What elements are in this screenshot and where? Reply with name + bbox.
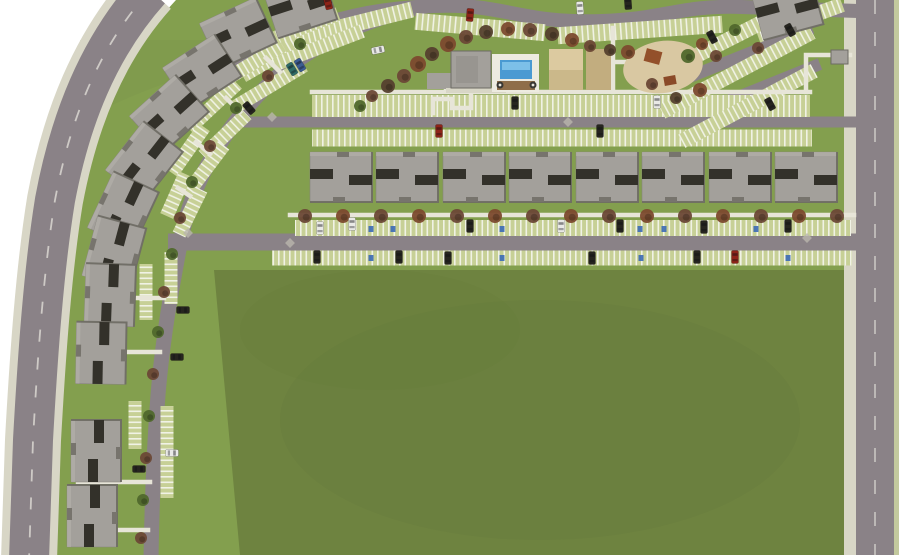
handicap-marker bbox=[391, 226, 396, 232]
courtyard-notch bbox=[576, 169, 599, 179]
car-rear-window bbox=[396, 259, 401, 261]
car-windshield bbox=[654, 98, 659, 101]
car-body bbox=[589, 252, 596, 265]
car bbox=[317, 222, 324, 235]
tree-shadow bbox=[370, 94, 376, 100]
tree-shadow bbox=[570, 38, 577, 45]
car bbox=[512, 97, 519, 110]
car-body bbox=[467, 220, 474, 233]
amenity-detail bbox=[499, 84, 502, 87]
car bbox=[785, 220, 792, 233]
handicap-marker bbox=[369, 226, 374, 232]
car-rear-window bbox=[168, 450, 170, 455]
courtyard-notch bbox=[349, 175, 372, 185]
right-road-sidewalk bbox=[844, 0, 856, 555]
courtyard-notch bbox=[443, 169, 466, 179]
roof-vent bbox=[470, 152, 482, 157]
courtyard-notch bbox=[84, 524, 94, 547]
tree-shadow bbox=[835, 214, 842, 221]
tree-shadow bbox=[493, 214, 500, 221]
tree-shadow bbox=[698, 88, 705, 95]
car-body bbox=[512, 97, 519, 110]
roof-vent bbox=[403, 152, 415, 157]
apartment-building bbox=[376, 152, 438, 202]
tree-shadow bbox=[714, 54, 720, 60]
roof-vent bbox=[85, 286, 90, 298]
tree-shadow bbox=[759, 214, 766, 221]
car-windshield bbox=[577, 4, 582, 7]
parking-stalls bbox=[272, 251, 852, 266]
tree-shadow bbox=[208, 144, 214, 150]
roof-vent bbox=[116, 447, 121, 459]
car-rear-window bbox=[317, 230, 322, 232]
car-rear-window bbox=[467, 228, 472, 230]
car-body bbox=[133, 466, 146, 473]
car-windshield bbox=[589, 254, 594, 257]
car bbox=[624, 0, 632, 10]
car bbox=[732, 251, 739, 264]
car-windshield bbox=[617, 222, 622, 225]
roof-vent bbox=[337, 152, 349, 157]
car-windshield bbox=[317, 224, 322, 227]
car-rear-window bbox=[654, 104, 659, 106]
tree-shadow bbox=[139, 536, 145, 542]
right-road-verge bbox=[894, 0, 899, 555]
roof-vent bbox=[466, 197, 478, 202]
tree-shadow bbox=[733, 28, 739, 34]
tree-shadow bbox=[721, 214, 728, 221]
car-body bbox=[436, 125, 443, 138]
handicap-marker bbox=[369, 255, 374, 261]
courtyard-notch bbox=[310, 169, 333, 179]
car bbox=[617, 220, 624, 233]
car-windshield bbox=[178, 354, 181, 359]
tree-shadow bbox=[607, 214, 614, 221]
tree-shadow bbox=[417, 214, 424, 221]
car-windshield bbox=[140, 466, 143, 471]
apartment-building bbox=[709, 152, 771, 202]
car-body bbox=[701, 221, 708, 234]
handicap-marker bbox=[786, 255, 791, 261]
tree-shadow bbox=[484, 30, 491, 37]
apartment-building bbox=[310, 152, 372, 202]
tree-shadow bbox=[156, 330, 162, 336]
car bbox=[694, 251, 701, 264]
apartment-building bbox=[67, 485, 117, 547]
tree-shadow bbox=[144, 456, 150, 462]
roof-vent bbox=[67, 508, 72, 520]
tree-shadow bbox=[506, 27, 513, 34]
car bbox=[445, 252, 452, 265]
tree-shadow bbox=[170, 252, 176, 258]
amenity-structure bbox=[456, 56, 478, 83]
roof-vent bbox=[333, 197, 345, 202]
car bbox=[466, 8, 474, 22]
courtyard-notch bbox=[92, 361, 102, 384]
car-rear-window bbox=[597, 133, 602, 135]
handicap-marker bbox=[500, 255, 505, 261]
apartment-building bbox=[775, 152, 837, 202]
courtyard-notch bbox=[748, 175, 771, 185]
tree-shadow bbox=[358, 104, 364, 110]
roof-vent bbox=[112, 512, 117, 524]
car-windshield bbox=[468, 11, 473, 14]
tree-shadow bbox=[141, 498, 147, 504]
car-body bbox=[396, 251, 403, 264]
apartment-building bbox=[642, 152, 704, 202]
car-body bbox=[785, 220, 792, 233]
car-windshield bbox=[396, 253, 401, 256]
car-body bbox=[171, 354, 184, 361]
car-rear-window bbox=[314, 259, 319, 261]
parking-band bbox=[272, 251, 852, 266]
roof-vent bbox=[71, 443, 76, 455]
amenity-structure bbox=[427, 73, 453, 89]
car-windshield bbox=[701, 223, 706, 226]
amenity-structure bbox=[549, 49, 583, 70]
car bbox=[597, 125, 604, 138]
roof-vent bbox=[736, 152, 748, 157]
tree-shadow bbox=[234, 106, 240, 112]
site-plan-svg bbox=[0, 0, 915, 555]
courtyard-notch bbox=[509, 169, 532, 179]
courtyard-notch bbox=[548, 175, 571, 185]
tree-shadow bbox=[645, 214, 652, 221]
tree-shadow bbox=[430, 52, 437, 59]
tree-shadow bbox=[756, 46, 762, 52]
roof-vent bbox=[669, 152, 681, 157]
tree-shadow bbox=[147, 414, 153, 420]
car-body bbox=[654, 96, 661, 109]
apartment-building bbox=[71, 420, 121, 482]
car bbox=[589, 252, 596, 265]
tree-shadow bbox=[626, 50, 633, 57]
courtyard-notch bbox=[814, 175, 837, 185]
car-windshield bbox=[173, 450, 176, 455]
tree-shadow bbox=[455, 214, 462, 221]
roof-vent bbox=[536, 152, 548, 157]
tree-shadow bbox=[379, 214, 386, 221]
roof-vent bbox=[802, 152, 814, 157]
car-windshield bbox=[349, 220, 354, 223]
car-body bbox=[166, 450, 179, 457]
car-rear-window bbox=[135, 466, 137, 471]
car-windshield bbox=[512, 99, 517, 102]
tree-shadow bbox=[386, 84, 393, 91]
courtyard-notch bbox=[775, 169, 798, 179]
courtyard-notch bbox=[482, 175, 505, 185]
car-rear-window bbox=[694, 259, 699, 261]
handicap-marker bbox=[500, 226, 505, 232]
car bbox=[314, 251, 321, 264]
handicap-marker bbox=[638, 226, 643, 232]
parking-stalls bbox=[140, 264, 153, 320]
parking-stalls bbox=[312, 130, 812, 147]
courtyard-notch bbox=[99, 322, 109, 345]
parking-band bbox=[140, 264, 153, 320]
tree-shadow bbox=[151, 372, 157, 378]
car-rear-window bbox=[701, 229, 706, 231]
car bbox=[436, 125, 443, 138]
car-body bbox=[314, 251, 321, 264]
roof-vent bbox=[121, 349, 126, 361]
car bbox=[133, 466, 146, 473]
car-rear-window bbox=[578, 10, 583, 13]
roof-vent bbox=[603, 152, 615, 157]
car-rear-window bbox=[436, 133, 441, 135]
amenity-detail bbox=[532, 84, 535, 87]
car bbox=[576, 1, 584, 14]
apartment-building bbox=[576, 152, 638, 202]
handicap-marker bbox=[662, 226, 667, 232]
car bbox=[558, 220, 565, 233]
tree-shadow bbox=[415, 61, 423, 69]
car-body bbox=[576, 1, 584, 14]
car-rear-window bbox=[785, 228, 790, 230]
car-rear-window bbox=[732, 259, 737, 261]
car-windshield bbox=[467, 222, 472, 225]
tree-shadow bbox=[464, 35, 471, 42]
tree-shadow bbox=[341, 214, 348, 221]
apartment-building bbox=[443, 152, 505, 202]
roof-vent bbox=[732, 197, 744, 202]
tree-shadow bbox=[588, 44, 594, 50]
car bbox=[467, 220, 474, 233]
car-body bbox=[597, 125, 604, 138]
car-rear-window bbox=[349, 226, 354, 228]
car-body bbox=[694, 251, 701, 264]
car-body bbox=[558, 220, 565, 233]
car bbox=[177, 307, 190, 314]
car bbox=[166, 450, 179, 457]
courtyard-notch bbox=[642, 169, 665, 179]
car-windshield bbox=[785, 222, 790, 225]
tree-shadow bbox=[402, 74, 409, 81]
car-windshield bbox=[732, 253, 737, 256]
car-windshield bbox=[314, 253, 319, 256]
tree-shadow bbox=[162, 290, 168, 296]
car-body bbox=[466, 8, 474, 22]
courtyard-notch bbox=[681, 175, 704, 185]
tree-shadow bbox=[550, 32, 557, 39]
tree-shadow bbox=[445, 41, 453, 49]
car-rear-window bbox=[179, 307, 181, 312]
courtyard-notch bbox=[90, 485, 100, 508]
apartment-building bbox=[84, 263, 136, 327]
car-rear-window bbox=[589, 260, 594, 262]
courtyard-notch bbox=[376, 169, 399, 179]
car-windshield bbox=[445, 254, 450, 257]
car-rear-window bbox=[626, 5, 631, 8]
car-windshield bbox=[184, 307, 187, 312]
car-body bbox=[445, 252, 452, 265]
car-rear-window bbox=[617, 228, 622, 230]
handicap-marker bbox=[754, 226, 759, 232]
tree-shadow bbox=[700, 42, 706, 48]
tree-shadow bbox=[298, 42, 304, 48]
courtyard-notch bbox=[108, 264, 119, 287]
tree-shadow bbox=[531, 214, 538, 221]
car-rear-window bbox=[445, 260, 450, 262]
tree-shadow bbox=[674, 96, 680, 102]
car-body bbox=[177, 307, 190, 314]
parking-stalls bbox=[129, 401, 142, 449]
car-body bbox=[349, 218, 356, 231]
roof-vent bbox=[130, 292, 135, 304]
car bbox=[349, 218, 356, 231]
courtyard-notch bbox=[615, 175, 638, 185]
roof-vent bbox=[76, 345, 81, 357]
roof-vent bbox=[399, 197, 411, 202]
field-mottling bbox=[240, 270, 520, 390]
site-plan-image bbox=[0, 0, 915, 555]
tree-shadow bbox=[178, 216, 184, 222]
car-windshield bbox=[597, 127, 602, 130]
car-windshield bbox=[694, 253, 699, 256]
car bbox=[701, 221, 708, 234]
tree-shadow bbox=[683, 214, 690, 221]
amenity-structure bbox=[831, 50, 848, 64]
car-body bbox=[617, 220, 624, 233]
parking-band bbox=[312, 130, 812, 147]
car-rear-window bbox=[467, 17, 472, 20]
parking-band bbox=[129, 401, 142, 449]
roof-vent bbox=[665, 197, 677, 202]
car-rear-window bbox=[512, 105, 517, 107]
tree-shadow bbox=[528, 28, 535, 35]
roof-vent bbox=[599, 197, 611, 202]
courtyard-notch bbox=[88, 459, 98, 482]
amenity-structure bbox=[502, 62, 530, 70]
car bbox=[654, 96, 661, 109]
courtyard-notch bbox=[94, 420, 104, 443]
car-windshield bbox=[436, 127, 441, 130]
right-road bbox=[856, 0, 894, 555]
car-body bbox=[317, 222, 324, 235]
roof-vent bbox=[532, 197, 544, 202]
courtyard-notch bbox=[709, 169, 732, 179]
apartment-building bbox=[75, 322, 126, 385]
tree-shadow bbox=[608, 48, 614, 54]
tree-shadow bbox=[650, 82, 656, 88]
courtyard-notch bbox=[415, 175, 438, 185]
car bbox=[396, 251, 403, 264]
car-rear-window bbox=[173, 354, 175, 359]
tree-shadow bbox=[686, 54, 693, 61]
car-body bbox=[732, 251, 739, 264]
tree-shadow bbox=[303, 214, 310, 221]
tree-shadow bbox=[797, 214, 804, 221]
tree-shadow bbox=[190, 180, 196, 186]
roof-vent bbox=[798, 197, 810, 202]
car-rear-window bbox=[558, 228, 563, 230]
tree-shadow bbox=[266, 74, 272, 80]
apartment-building bbox=[509, 152, 571, 202]
tree-shadow bbox=[569, 214, 576, 221]
car bbox=[171, 354, 184, 361]
car-windshield bbox=[558, 222, 563, 225]
handicap-marker bbox=[639, 255, 644, 261]
